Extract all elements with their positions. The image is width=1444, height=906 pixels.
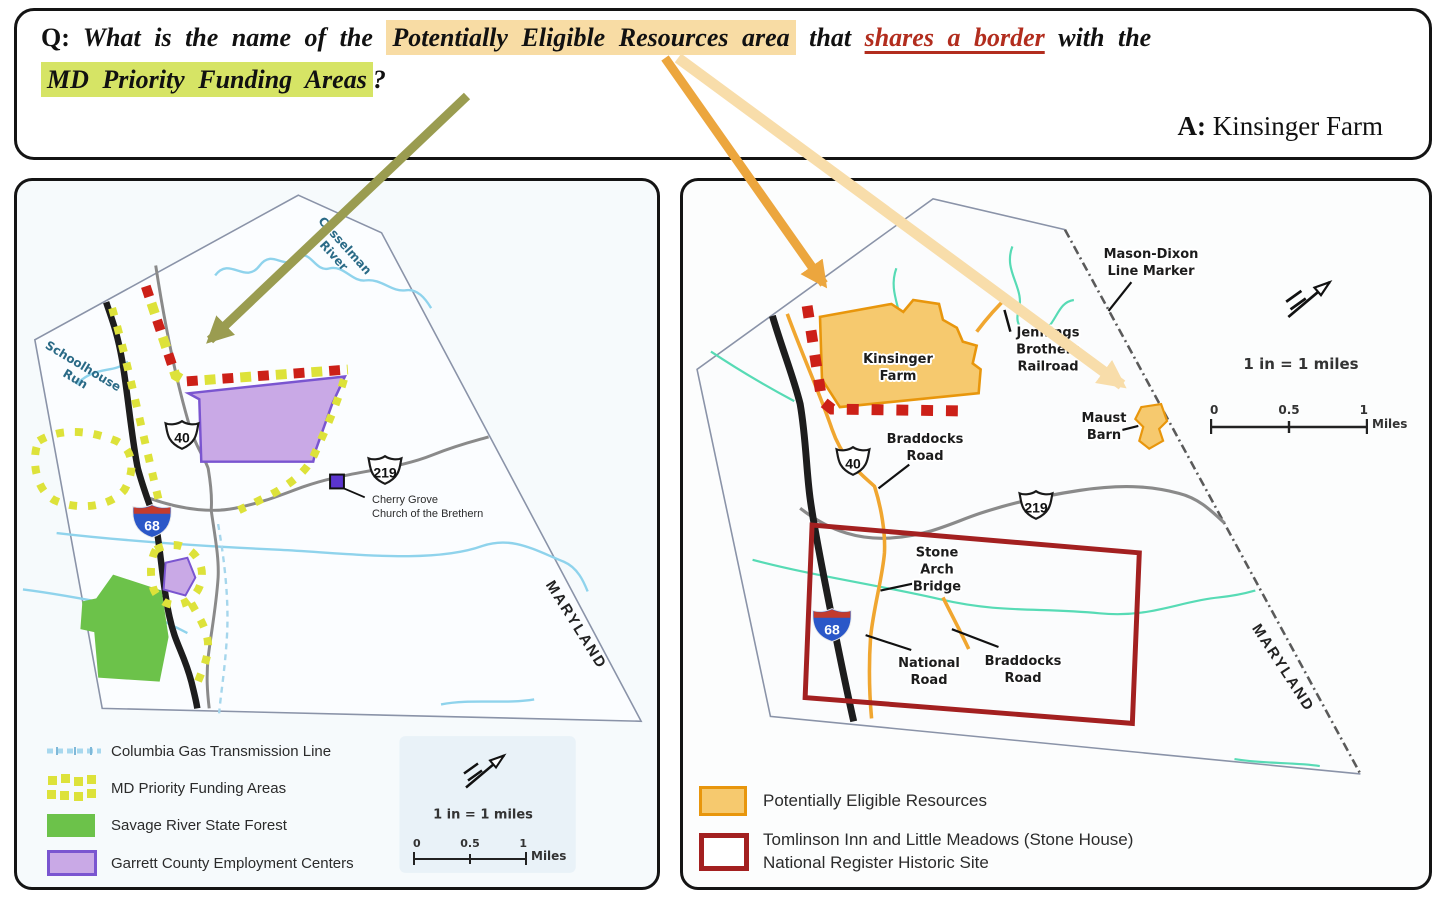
- route-number: 68: [811, 607, 853, 644]
- scale-bar-line: [413, 851, 527, 865]
- q-label: Q:: [41, 23, 70, 52]
- legend-item-priority-funding: MD Priority Funding Areas: [47, 769, 354, 807]
- right-legend: Potentially Eligible Resources Tomlinson…: [699, 779, 1133, 881]
- answer-line: A: Kinsinger Farm: [1178, 111, 1383, 142]
- legend-item-state-forest: Savage River State Forest: [47, 807, 354, 844]
- question-line-2: MD Priority Funding Areas?: [41, 65, 386, 95]
- left-legend: Columbia Gas Transmission Line MD Priori…: [47, 733, 354, 882]
- question-box: Q: What is the name of the Potentially E…: [14, 8, 1432, 160]
- scale-bar: 0 0.5 1 Miles: [1210, 403, 1368, 439]
- route-number: 219: [1017, 489, 1055, 522]
- scale-bar: 0 0.5 1 Miles: [413, 837, 527, 870]
- priority-funding-swatch: [47, 774, 101, 802]
- route-number: 219: [366, 454, 404, 487]
- q-question-mark: ?: [373, 65, 386, 94]
- church-label: Cherry Grove Church of the Brethern: [372, 493, 483, 522]
- legend-item-employment-centers: Garrett County Employment Centers: [47, 844, 354, 882]
- route-number: 40: [163, 419, 201, 452]
- maust-barn-label: Maust Barn: [1082, 411, 1127, 445]
- us-219-shield-left: 219: [366, 454, 404, 487]
- figure-page: Q: What is the name of the Potentially E…: [0, 0, 1444, 906]
- us-40-shield-left: 40: [163, 419, 201, 452]
- gas-line-swatch: [47, 744, 101, 758]
- historic-site-label: Tomlinson Inn and Little Meadows (Stone …: [763, 829, 1133, 875]
- employment-centers-swatch: [47, 850, 97, 876]
- right-map-panel: Mason-Dixon Line Marker Kinsinger Farm J…: [680, 178, 1432, 890]
- braddocks-road-upper-label: Braddocks Road: [887, 432, 964, 466]
- scale-caption: 1 in = 1 miles: [433, 808, 533, 823]
- jennings-railroad-label: Jennings Brothers Railroad: [1016, 326, 1080, 377]
- answer-text: Kinsinger Farm: [1213, 111, 1383, 141]
- braddocks-road-lower-label: Braddocks Road: [985, 654, 1062, 688]
- scale-caption: 1 in = 1 miles: [1243, 355, 1358, 373]
- us-219-shield-right: 219: [1017, 489, 1055, 522]
- historic-site-swatch: [699, 833, 749, 871]
- q-part3: with the: [1058, 23, 1151, 52]
- q-highlight-orange: Potentially Eligible Resources area: [386, 20, 795, 55]
- eligible-resources-swatch: [699, 786, 747, 816]
- route-number: 40: [834, 445, 872, 478]
- i-68-shield-left: 68: [131, 503, 173, 540]
- q-highlight-red: shares a border: [865, 23, 1045, 52]
- i-68-shield-right: 68: [811, 607, 853, 644]
- q-part2: that: [809, 23, 851, 52]
- legend-item-gas-line: Columbia Gas Transmission Line: [47, 733, 354, 769]
- kinsinger-farm-label: Kinsinger Farm: [863, 352, 933, 386]
- us-40-shield-right: 40: [834, 445, 872, 478]
- q-highlight-green: MD Priority Funding Areas: [41, 62, 373, 97]
- question-line-1: Q: What is the name of the Potentially E…: [41, 23, 1151, 53]
- left-map-panel: Casselman River Schoolhouse Run MARYLAND…: [14, 178, 660, 890]
- route-number: 68: [131, 503, 173, 540]
- north-arrow-icon: [1279, 274, 1339, 329]
- q-part1: What is the name of the: [83, 23, 373, 52]
- scale-bar-line: [1210, 418, 1368, 434]
- legend-item-eligible-resources: Potentially Eligible Resources: [699, 779, 1133, 823]
- national-road-label: National Road: [898, 656, 960, 690]
- a-label: A:: [1178, 111, 1207, 141]
- legend-item-historic-site: Tomlinson Inn and Little Meadows (Stone …: [699, 823, 1133, 881]
- state-forest-swatch: [47, 814, 95, 837]
- north-arrow-icon: [458, 748, 512, 799]
- stone-arch-bridge-label: Stone Arch Bridge: [913, 546, 961, 597]
- mason-dixon-label: Mason-Dixon Line Marker: [1104, 247, 1199, 281]
